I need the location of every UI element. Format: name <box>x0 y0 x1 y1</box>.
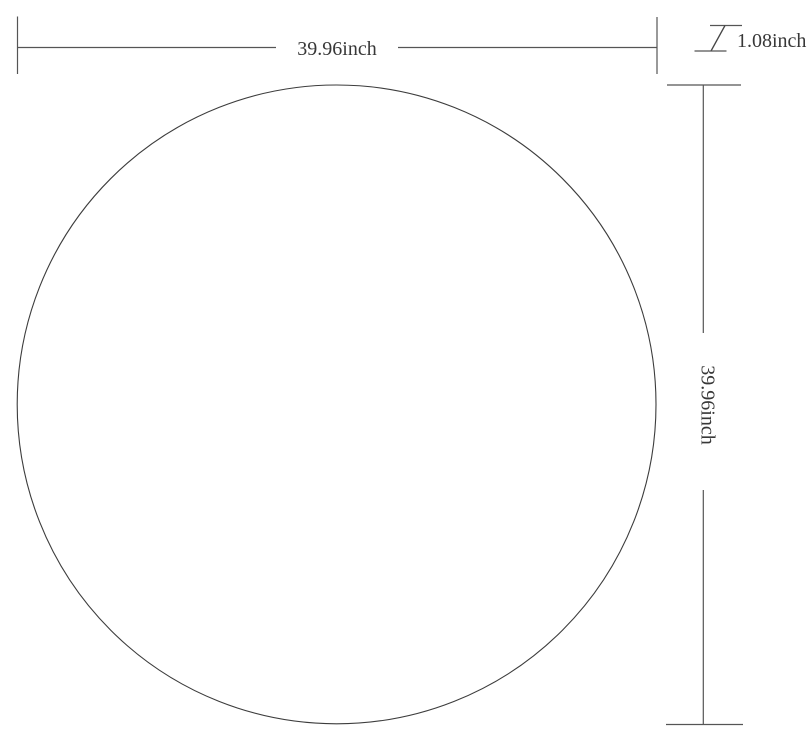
svg-text:39.96inch: 39.96inch <box>297 38 376 60</box>
svg-text:39.96inch: 39.96inch <box>697 365 719 444</box>
svg-text:1.08inch: 1.08inch <box>737 30 806 52</box>
